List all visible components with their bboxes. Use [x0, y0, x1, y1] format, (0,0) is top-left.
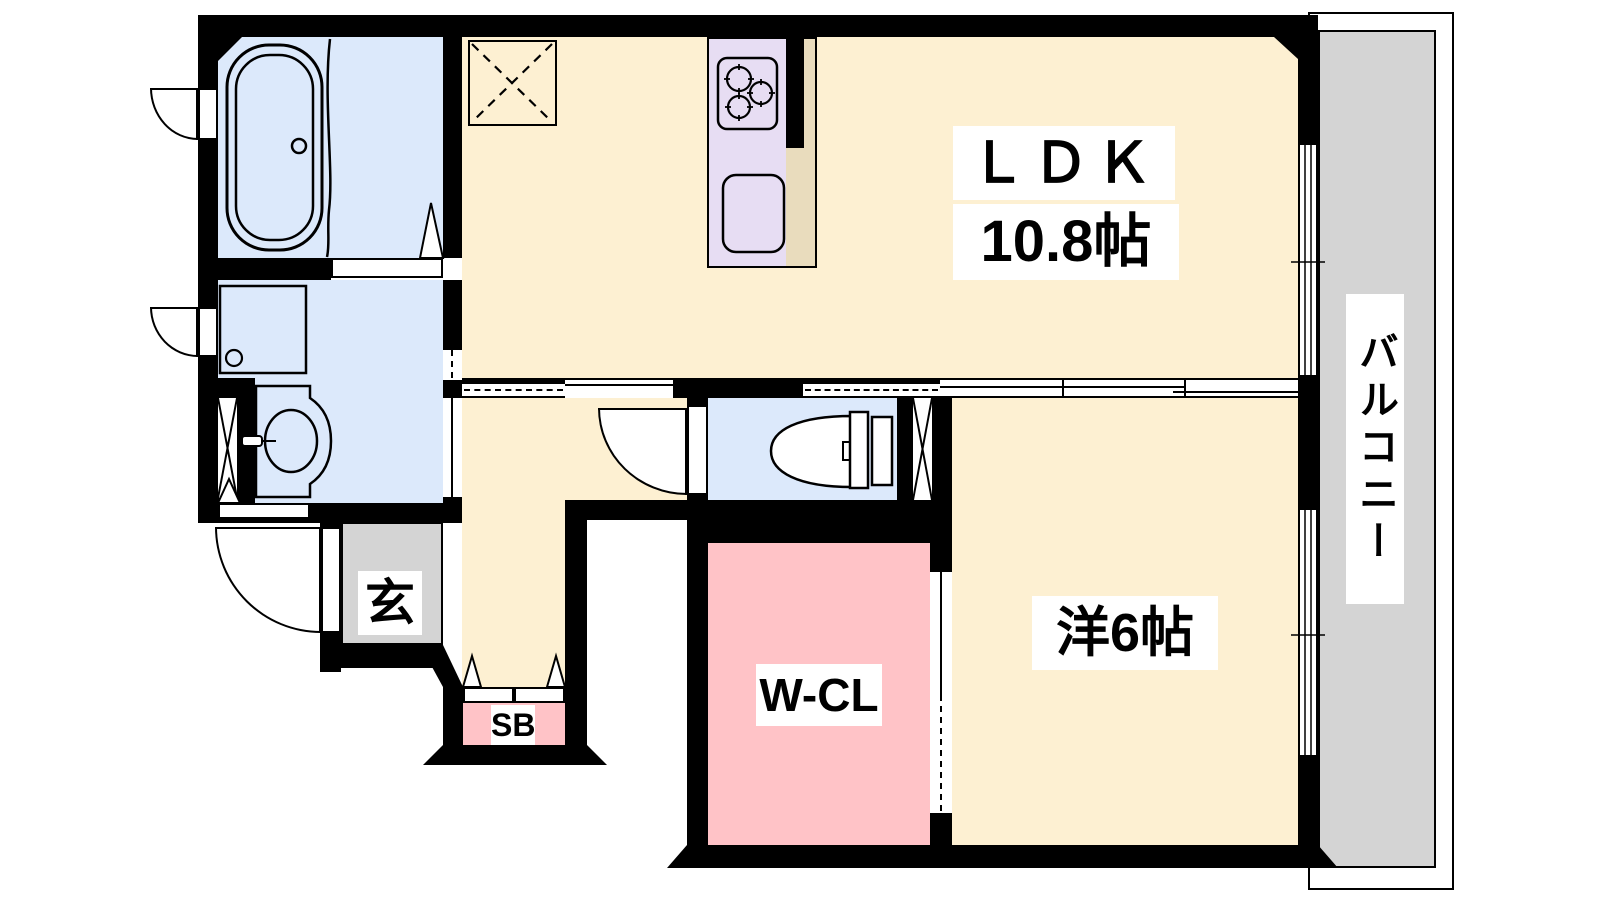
bath-sliding-door: [331, 258, 443, 278]
wall-toilet-bottom: [687, 500, 952, 543]
wall-right-a: [1298, 15, 1318, 145]
sliding-doors-ldk-western: [940, 378, 1298, 398]
floor-plan: ＬＤＫ 10.8帖 洋6帖 W-CL 玄 SB バルコニー: [0, 0, 1600, 900]
ldk-label: ＬＤＫ: [953, 126, 1175, 200]
wall-band-center: [673, 378, 803, 398]
wcl-pocket-track: [931, 695, 951, 813]
ldk-balcony-window: [1298, 145, 1318, 375]
wash-left-door-arc: [150, 307, 198, 357]
kitchen-counter: [707, 37, 817, 268]
wall-wash-right-b: [443, 380, 462, 398]
toilet-door-leaf: [687, 405, 708, 495]
entrance-door-arc: [215, 527, 321, 633]
sb-door-left: [463, 687, 514, 703]
wash-pocket-door: [443, 398, 462, 497]
wall-wcl-divider-bottom: [930, 813, 952, 847]
wall-bath-kitchen: [443, 37, 462, 258]
refrigerator-space: [468, 40, 557, 126]
wall-wcl-divider-top: [930, 543, 952, 572]
western-room-label: 洋6帖: [1032, 596, 1218, 670]
balcony-label: バルコニー: [1346, 294, 1404, 604]
wall-right-c: [1298, 755, 1318, 868]
pipe-space-right-block: [897, 380, 952, 503]
opening-hall-ldk: [565, 378, 673, 398]
wall-wcl-left: [687, 543, 708, 868]
walk-in-closet-label: W-CL: [756, 664, 882, 726]
wall-sb-bottom: [443, 745, 587, 765]
wall-bottom: [687, 845, 1318, 868]
wash-bottom-door: [218, 503, 310, 519]
bath-left-door-leaf: [198, 88, 218, 140]
sliding-partition-a: [462, 378, 565, 398]
entrance-door-leaf: [321, 527, 341, 633]
wall-top: [198, 15, 1318, 37]
western-balcony-window: [1298, 510, 1318, 755]
wall-entrance-bottom: [320, 645, 443, 668]
wall-wash-right-a: [443, 280, 462, 350]
wash-left-door-leaf: [198, 307, 218, 357]
sliding-partition-b: [803, 378, 940, 398]
wash-pocket-track: [443, 350, 462, 380]
shoe-box-label: SB: [491, 705, 535, 745]
wall-hall-right: [565, 500, 587, 765]
bath-left-door-arc: [150, 88, 198, 140]
ldk-size-label: 10.8帖: [953, 204, 1179, 280]
counter-wall-bar: [786, 39, 804, 148]
pipe-space-left-block: [198, 378, 255, 503]
wcl-pocket-door: [931, 572, 951, 695]
wall-right-b: [1298, 375, 1318, 510]
wall-bath-bottom: [198, 258, 331, 280]
wall-wash-right-c: [443, 497, 462, 523]
entrance-label: 玄: [358, 571, 422, 635]
room-bathroom: [218, 37, 443, 258]
room-toilet: [708, 398, 897, 500]
room-hallway-lower: [462, 500, 565, 687]
sb-door-right: [514, 687, 565, 703]
